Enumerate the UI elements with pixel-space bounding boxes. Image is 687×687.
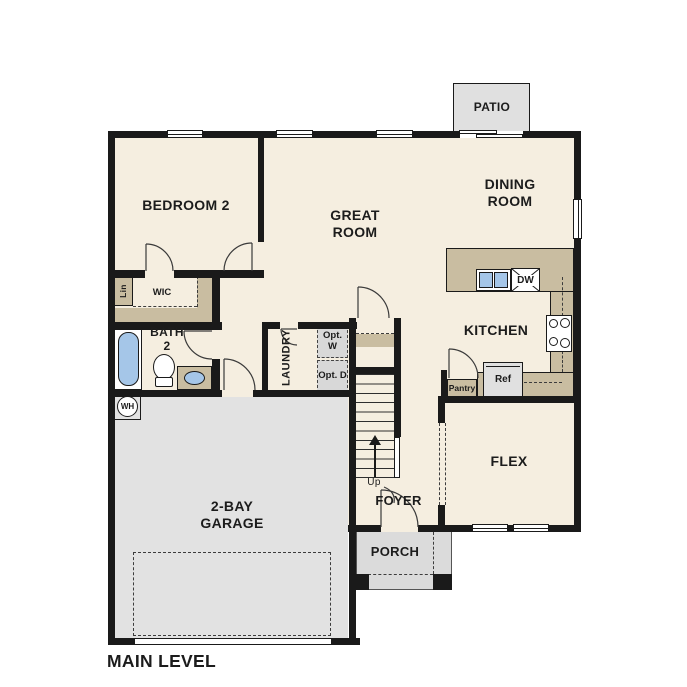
dishwasher: DW <box>511 268 540 292</box>
room-label-great-room: GREAT ROOM <box>314 207 396 241</box>
room-label-bedroom2: BEDROOM 2 <box>116 197 256 214</box>
room-label-flex: FLEX <box>474 453 544 470</box>
wall <box>574 131 581 532</box>
toilet-tank <box>155 377 173 387</box>
opt-dryer-label: Opt. D <box>318 371 347 382</box>
wall <box>262 322 280 329</box>
porch-post <box>433 574 452 590</box>
opt-washer-label: Opt. W <box>318 331 347 353</box>
pantry: Pantry <box>447 379 477 397</box>
wic-dashed-line <box>133 306 197 307</box>
floor-plan: DW Ref Pantry Opt. W Opt. D WH <box>0 0 687 687</box>
porch-dashed-line <box>368 574 433 575</box>
wall <box>108 131 115 645</box>
wall <box>394 318 401 437</box>
wall <box>349 367 401 374</box>
opt-dryer-box: Opt. D <box>317 360 348 393</box>
bathtub <box>118 332 139 386</box>
up-arrow-shaft <box>374 444 376 477</box>
front-door-opening <box>381 525 418 532</box>
wall <box>108 390 222 397</box>
room-label-bath2: BATH 2 <box>146 326 188 354</box>
room-label-kitchen: KITCHEN <box>448 322 544 339</box>
plan-title: MAIN LEVEL <box>107 651 307 672</box>
porch-dashed-line <box>433 532 434 574</box>
sink-basin <box>479 272 493 288</box>
wall <box>253 390 356 397</box>
kitchen-dashed-line <box>562 277 563 316</box>
closet-dashed-line <box>356 333 394 334</box>
porch-post <box>355 574 369 590</box>
window <box>167 130 203 138</box>
up-label: Up <box>363 477 385 489</box>
wall <box>258 131 264 242</box>
water-heater-label: WH <box>121 402 134 411</box>
refrigerator: Ref <box>483 362 523 397</box>
room-label-laundry: LAUNDRY <box>280 327 293 389</box>
garage-door <box>135 638 331 645</box>
wall <box>441 370 447 397</box>
water-heater: WH <box>117 396 138 417</box>
kitchen-dashed-line <box>524 382 562 383</box>
flex-opening-dashed <box>445 423 446 505</box>
room-label-foyer: FOYER <box>370 493 427 509</box>
wic-shelf-right <box>197 276 212 308</box>
garage-parking-outline <box>133 552 331 636</box>
window <box>276 130 313 138</box>
kitchen-dashed-line <box>562 351 563 372</box>
wall <box>438 403 445 423</box>
room-label-garage: 2-BAY GARAGE <box>186 498 278 532</box>
wic-shelf-bottom <box>114 308 212 322</box>
linen-label: Lin <box>118 277 128 305</box>
window <box>472 524 508 532</box>
patio-sliding-door <box>476 134 523 138</box>
window <box>376 130 413 138</box>
stove-burner <box>549 319 558 328</box>
stove-burner <box>560 338 570 348</box>
wall <box>438 505 445 532</box>
wall <box>438 396 581 403</box>
up-arrow-head <box>369 435 381 445</box>
stair-railing <box>394 437 400 478</box>
stove-burner <box>549 337 558 346</box>
stove-burner <box>560 318 570 328</box>
coat-closet-shelf <box>356 334 394 347</box>
flex-opening-dashed <box>439 423 440 505</box>
dishwasher-label: DW <box>516 275 535 286</box>
wall <box>212 359 220 390</box>
wall <box>174 270 264 278</box>
refrigerator-label: Ref <box>495 374 511 385</box>
vanity-sink <box>184 371 205 385</box>
refrigerator-top-line <box>486 366 520 367</box>
sink-basin <box>494 272 508 288</box>
room-label-dining-room: DINING ROOM <box>468 176 552 210</box>
room-label-patio: PATIO <box>456 100 528 114</box>
room-label-porch: PORCH <box>365 544 425 560</box>
pantry-label: Pantry <box>449 383 475 393</box>
wic-dashed-line <box>197 276 198 307</box>
window <box>513 524 549 532</box>
opt-washer-box: Opt. W <box>317 325 348 358</box>
window <box>573 199 582 239</box>
room-label-wic: WIC <box>139 287 185 298</box>
wall <box>262 322 268 390</box>
